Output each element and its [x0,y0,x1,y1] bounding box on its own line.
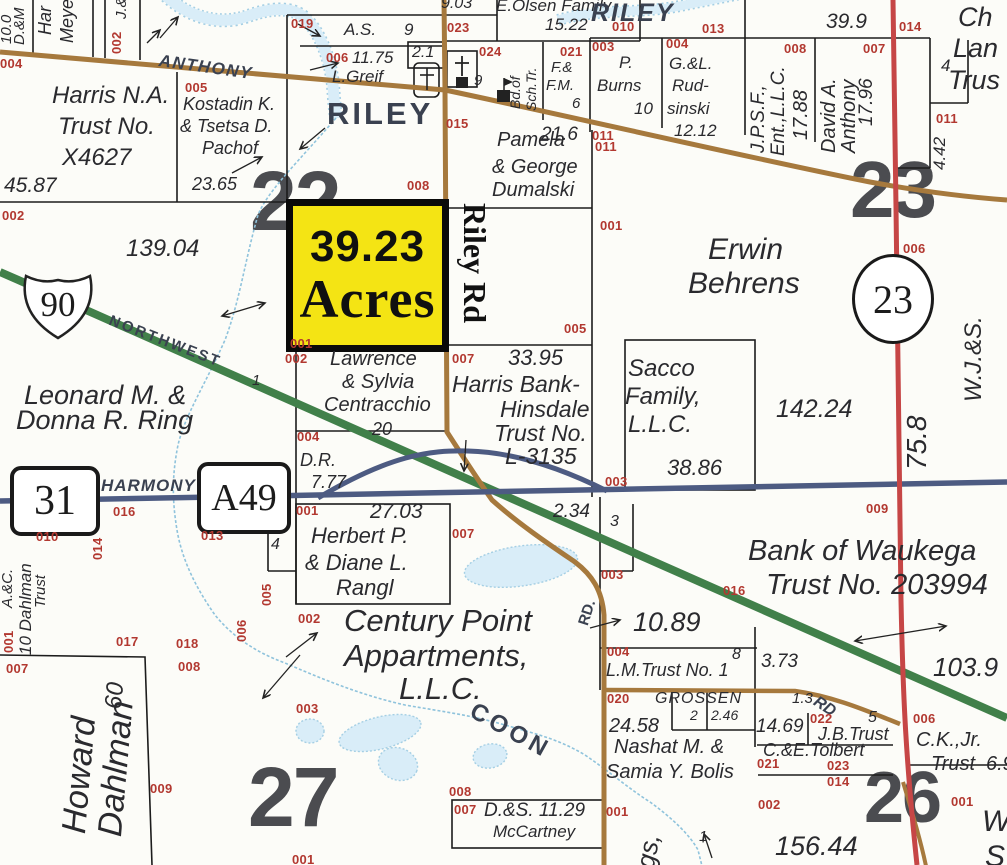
parcel-id: 006 [236,619,248,642]
map-label: G.&L. [669,56,712,72]
parcel-id: 021 [757,758,780,770]
parcel-id: 008 [449,786,472,798]
map-label: 3.73 [761,653,798,671]
map-label: 33.95 [508,348,563,369]
parcel-id: 020 [607,693,630,705]
map-label: Sch.Tr. [525,67,538,111]
parcel-id: 017 [116,636,139,648]
map-label: J.P.S.F., [750,85,768,153]
parcel-id: 003 [296,703,319,715]
parcel-id: 008 [407,180,430,192]
map-label: Family, [625,386,701,409]
map-label: S [985,843,1005,865]
map-label: 15.22 [545,17,588,33]
parcel-id: 007 [454,804,477,816]
map-label: A.S. [344,22,376,38]
map-label: 6.9 [986,755,1007,774]
map-label: Hinsdale [500,399,590,421]
parcel-id: 002 [298,613,321,625]
map-label: Harris Bank- [452,374,580,396]
parcel-id: 007 [863,43,886,55]
parcel-id: 002 [285,353,308,365]
map-label: Harris N.A. [52,85,169,108]
map-label: Trust No. [494,423,587,445]
road-label-harmony: HARMONY [101,478,196,494]
parcel-id: 005 [261,583,273,606]
map-label: 27.03 [370,502,423,522]
map-label: D.&M [13,8,27,46]
map-label: Rangl [336,578,393,599]
map-label: 23.65 [192,176,237,193]
map-label: Dumalski [492,181,574,200]
map-label: 60 [103,681,128,710]
parcel-id: 002 [2,210,25,222]
parcel-id: 005 [185,82,208,94]
map-label: 156.44 [775,834,858,860]
parcel-id: 001 [292,854,315,865]
map-label: & George [492,158,578,177]
map-label: 1 [252,374,260,388]
map-label: 38.86 [667,458,722,479]
map-label: Trust No. [58,116,155,139]
parcel-id: 011 [936,113,958,125]
map-label: Bd.of [509,76,522,109]
road-label-anthony: ANTHONY [158,53,254,82]
parcel-id: 008 [784,43,807,55]
map-label: 12.12 [674,123,717,139]
map-label: gs, [633,832,663,865]
parcel-id: 011 [595,141,617,153]
map-label: Sacco [628,358,695,381]
map-label: 142.24 [776,398,852,422]
map-label: Behrens [688,270,800,299]
map-label: 75.8 [904,416,931,471]
map-label: J.& [115,0,129,19]
parcel-id: 013 [702,23,725,35]
parcel-id: 006 [903,243,926,255]
map-label: 39.9 [826,12,867,32]
map-label: Donna R. Ring [16,408,193,434]
map-label: 7.77 [311,474,346,491]
map-label: L.L.C. [628,414,692,437]
map-label: 9.03 [441,0,472,11]
map-label: L.Greif [332,69,383,85]
map-label: 3 [610,514,619,529]
map-label: F.M. [546,79,574,93]
map-label: Erwin [708,236,783,265]
road-label-coon: COON [466,700,554,763]
road-label-rd: RD. [577,598,599,627]
parcel-id: 014 [899,21,922,33]
parcel-id: 021 [560,46,583,58]
map-label: David A. [820,78,839,153]
map-label: 45.87 [4,176,57,196]
map-label: Meye [59,0,76,43]
map-label: 103.9 [933,655,998,680]
parcel-id: 008 [178,661,201,673]
map-label: 4.42 [932,137,948,170]
parcel-id: 019 [291,18,314,30]
map-label: Ent.,L.L.C. [770,66,788,156]
map-label: Trust No. 203994 [766,572,988,600]
map-label: L-3135 [505,446,577,468]
map-label: & Sylvia [342,373,414,392]
parcel-id: 016 [113,506,136,518]
road-label-northwest: NORTHWEST [107,314,223,370]
parcel-id: 003 [605,476,628,488]
map-label: 2.34 [553,503,590,521]
parcel-id: 023 [447,22,470,34]
parcel-id: 007 [452,353,475,365]
map-label: Appartments, [344,641,528,670]
parcel-id: 018 [176,638,199,650]
parcel-id: 014 [92,537,104,560]
parcel-id: 003 [601,569,624,581]
map-label: Pachof [202,140,258,157]
parcel-id: 013 [201,530,224,542]
road-label-riley: RILEY [327,99,433,128]
parcel-id: 006 [913,713,936,725]
map-label: C.K.,Jr. [916,731,982,750]
map-label: Trust [931,755,975,774]
parcel-id: 010 [36,531,59,543]
map-label: 1.3 [792,692,813,706]
map-label: 5 [868,710,877,725]
map-label: Samia Y. Bolis [606,763,734,782]
map-label: Trust [34,575,48,608]
map-label: Burns [597,78,641,94]
map-label: 2.46 [711,709,738,722]
map-label: 9 [474,74,482,88]
map-label: L.M.Trust No. 1 [606,662,729,679]
map-label: Century Point [344,606,532,635]
map-label: P. [619,55,633,71]
map-label: Herbert P. [311,526,408,547]
parcel-id: 001 [296,505,319,517]
map-label: 8 [732,647,741,662]
parcel-id: 015 [446,118,469,130]
parcel-id: 004 [607,646,630,658]
parcel-id: 001 [951,796,974,808]
map-label: 17.88 [792,90,811,140]
map-label: W [982,808,1007,837]
map-label: Lan [953,36,998,62]
map-label: 11.75 [352,50,393,66]
road-label-riley-rd: Riley Rd [460,203,490,323]
map-label: F.& [551,61,572,75]
parcel-id: 002 [758,799,781,811]
map-label: & Diane L. [305,553,408,574]
map-label: 14.69 [756,718,804,736]
map-label: 2 [690,709,698,722]
map-label: Rud- [672,78,709,94]
map-label: Ch [958,5,993,31]
road-label-riley-east: RILEY [591,2,675,26]
parcel-id: 001 [600,220,623,232]
map-label: 17.96 [858,78,876,126]
map-label: D.&S. 11.29 [484,802,585,820]
map-label: 4 [941,58,950,74]
map-label: 6 [572,97,580,111]
map-label: X4627 [62,147,131,170]
map-label: & Tsetsa D. [180,118,272,135]
map-label: 9 [404,22,413,38]
map-label: 2.1 [412,45,434,60]
map-label: sinski [667,101,710,117]
parcel-id: 005 [564,323,587,335]
map-label: Bank of Waukega [748,538,976,566]
map-label: L.L.C. [399,674,482,703]
parcel-id: 003 [592,41,615,53]
map-label: 10 [634,101,653,117]
map-label: McCartney [493,824,575,840]
map-label: W.J.&S. [963,316,986,402]
map-label: 10.89 [633,610,701,636]
parcel-id: 001 [290,338,313,350]
map-label: 24.58 [609,717,659,736]
map-label: 139.04 [126,238,199,261]
map-label: Nashat M. & [614,738,724,757]
parcel-id: 016 [723,585,746,597]
map-label: 4 [271,537,280,552]
parcel-id: 004 [297,431,320,443]
parcel-id: 014 [827,776,850,788]
parcel-id: 004 [0,58,23,70]
parcel-id: 002 [111,31,123,54]
parcel-id: 007 [6,663,29,675]
map-label: 1 [699,830,707,844]
parcel-id: 006 [326,52,349,64]
map-label: Centracchio [324,396,431,415]
map-label: GROSSEN [655,691,742,706]
parcel-id: 004 [666,38,689,50]
map-label: A.&C. [1,569,15,608]
parcel-id: 001 [606,806,629,818]
parcel-id: 009 [150,783,173,795]
parcel-id: 009 [866,503,889,515]
labels-layer: 10.0D.&MHarMeyeJ.&002004ANTHONYHarris N.… [0,0,1007,865]
map-label: Trus [948,68,1000,94]
plat-map: 22232726 [0,0,1007,865]
map-label: Dahlman [94,699,138,837]
map-label: Kostadin K. [183,96,275,113]
map-label: Har [37,6,54,35]
parcel-id: 001 [3,630,15,653]
parcel-id: 024 [479,46,502,58]
parcel-id: 023 [827,760,850,772]
map-label: 21.6 [541,126,578,144]
parcel-id: 007 [452,528,475,540]
map-label: 20 [372,421,392,438]
map-label: D.R. [300,452,336,469]
map-label: Lawrence [330,350,417,369]
